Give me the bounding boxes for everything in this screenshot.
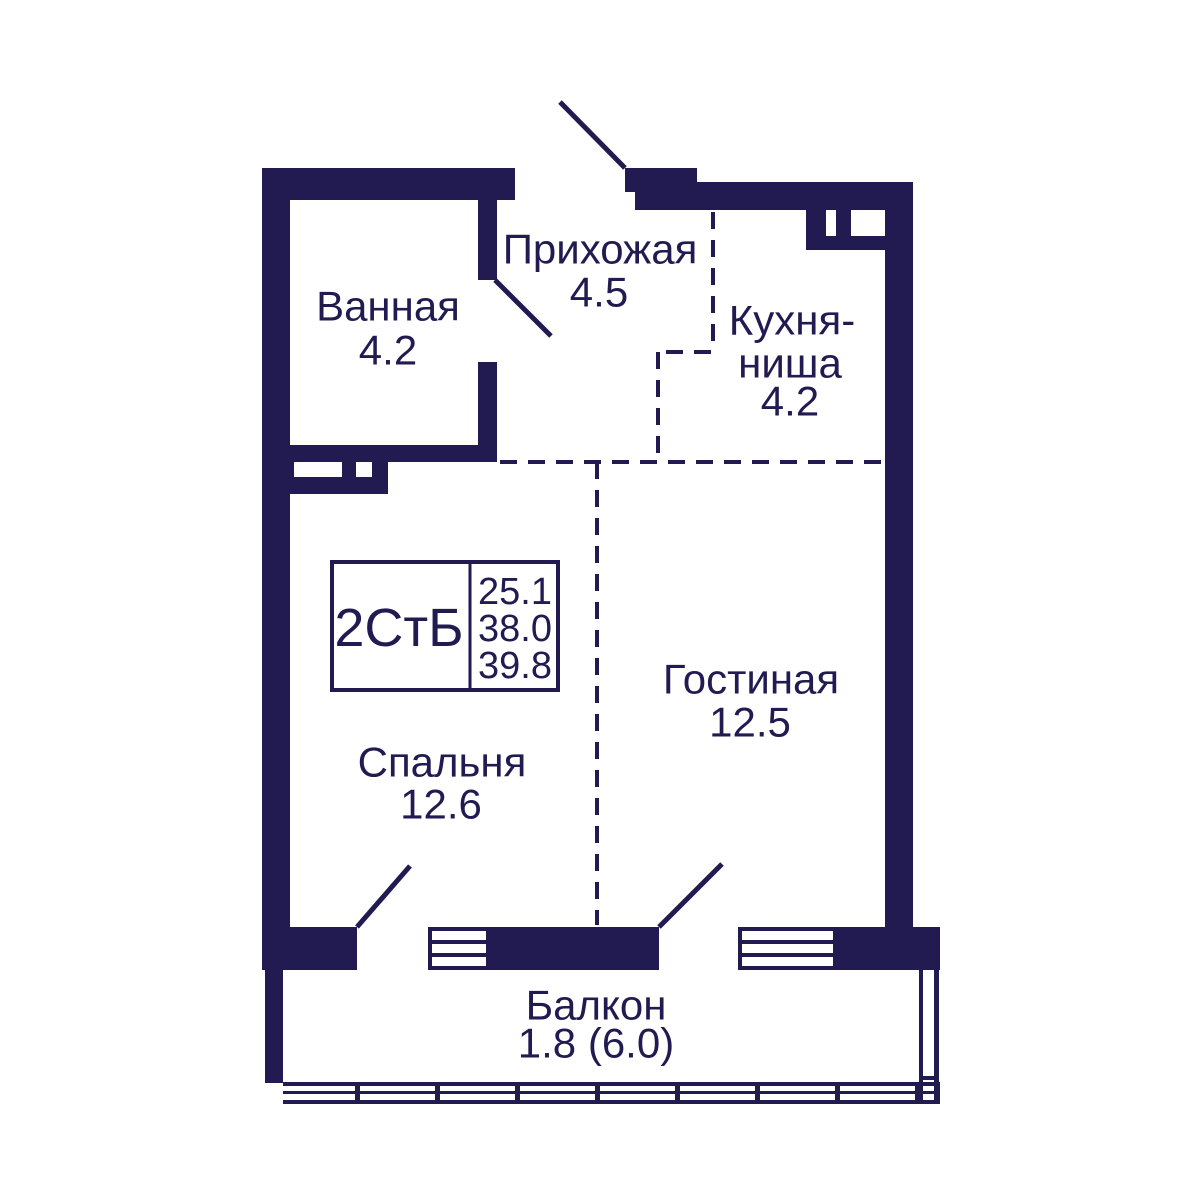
wall-bathroom-right-lower <box>478 362 497 445</box>
bathroom-area: 4.2 <box>359 327 417 374</box>
window-living <box>738 927 837 970</box>
area-value-3: 39.8 <box>478 645 552 687</box>
vent-slot-white <box>826 210 836 236</box>
railing-right-inner-line <box>919 970 923 1104</box>
living-balcony-door-swing <box>659 864 722 927</box>
area-value-2: 38.0 <box>478 608 552 650</box>
info-box: 2СтБ 25.1 38.0 39.8 <box>332 562 558 690</box>
railing-divider <box>835 1082 840 1104</box>
kitchen-label-line1: Кухня- <box>729 297 855 344</box>
wall-bottom-bedroom <box>262 927 357 970</box>
bedroom-balcony-door-swing <box>357 866 410 927</box>
apartment-type-label: 2СтБ <box>334 598 463 658</box>
wall-bathroom-bottom <box>290 445 497 462</box>
wall-top-left <box>262 168 515 200</box>
balcony-railing <box>283 1082 940 1104</box>
vent-window-white <box>851 210 885 236</box>
window-bedroom-pane <box>432 944 486 953</box>
floor-plan-canvas: 2СтБ 25.1 38.0 39.8 Ванная 4.2 Прихожая … <box>0 0 1200 1200</box>
bathroom-label: Ванная <box>316 283 460 330</box>
living-area: 12.5 <box>709 699 791 746</box>
railing-right-outer-line <box>934 970 939 1104</box>
bedroom-area: 12.6 <box>400 781 482 828</box>
railing-right-tick <box>919 1076 939 1080</box>
window-living-pane <box>742 944 833 953</box>
window-bedroom-pane <box>432 957 486 966</box>
bathroom-door-swing <box>495 280 551 336</box>
wall-bottom-right <box>837 927 940 970</box>
shaft-vent-white <box>356 462 372 477</box>
railing-mid-line <box>283 1091 940 1094</box>
railing-bottom-line <box>283 1100 940 1104</box>
balcony-area: 1.8 (6.0) <box>518 1020 674 1067</box>
bedroom-label: Спальня <box>358 739 527 786</box>
window-living-pane <box>742 957 833 966</box>
wall-bathroom-right-upper <box>478 200 497 280</box>
wall-top-right <box>635 182 913 210</box>
entry-door-swing <box>560 102 625 168</box>
area-value-1: 25.1 <box>478 571 552 613</box>
living-label: Гостиная <box>663 656 839 703</box>
railing-divider <box>755 1082 760 1104</box>
shaft-slot-white <box>294 462 342 477</box>
window-living-pane <box>742 931 833 940</box>
hallway-label: Прихожая <box>503 226 698 273</box>
window-bedroom <box>428 927 490 970</box>
wall-left <box>262 168 290 970</box>
railing-divider <box>595 1082 600 1104</box>
kitchen-area: 4.2 <box>761 378 819 425</box>
railing-divider <box>515 1082 520 1104</box>
window-bedroom-pane <box>432 931 486 940</box>
railing-divider <box>435 1082 440 1104</box>
railing-divider <box>675 1082 680 1104</box>
wall-right <box>885 182 913 927</box>
railing-divider <box>355 1082 360 1104</box>
railing-top-line <box>283 1082 940 1086</box>
floor-plan: 2СтБ 25.1 38.0 39.8 Ванная 4.2 Прихожая … <box>0 0 1200 1200</box>
wall-bottom-middle <box>490 927 659 970</box>
hallway-area: 4.5 <box>570 269 628 316</box>
balcony-wall-left <box>265 970 283 1083</box>
